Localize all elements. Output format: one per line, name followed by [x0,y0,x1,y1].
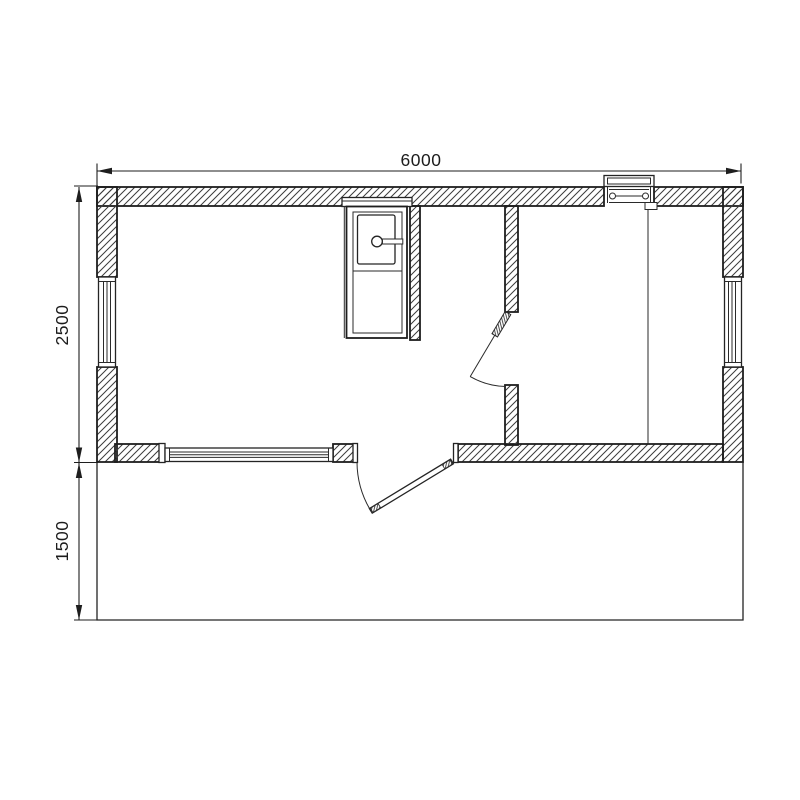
stove-flue-wall [410,206,420,340]
left-window [99,277,116,367]
bottom-wall-right [458,444,723,462]
left-wall-upper [97,187,117,277]
dimension-width-label: 6000 [401,150,442,170]
entrance-door-leaf [369,459,453,513]
vent-outer-box [604,176,654,187]
dimension-main-depth: 2500 [52,186,98,463]
interior-door-swing-arc [470,377,506,387]
dimension-main-depth-label: 2500 [52,305,72,346]
stove-body [347,207,408,339]
vent-step [645,203,657,210]
dimension-porch-depth-label: 1500 [52,521,72,562]
left-wall-lower [97,367,117,462]
right-window [725,277,742,367]
entrance-door-swing-arc [357,462,371,511]
vent-hinge-right [643,193,649,199]
stove-top-bar [342,198,412,207]
interior-wall-lower [505,385,518,445]
interior-door-leaf [492,311,511,337]
dimension-porch-depth: 1500 [52,463,98,621]
porch-outline [97,462,743,620]
stove-handle-knob [372,236,383,247]
entrance-door-jamb [454,444,459,463]
floor-plan-page: 6000 2500 1500 [0,0,800,800]
right-wall-lower [723,367,743,462]
bottom-wall-left [115,444,161,462]
top-vent-window [604,176,657,210]
stove-handle-bar [382,239,403,244]
entrance-door [357,444,458,514]
interior-wall [505,206,518,445]
stove [342,198,420,341]
vent-hinge-left [610,193,616,199]
right-wall-upper [723,187,743,277]
right-window-frame [725,277,742,367]
floor-plan-canvas: 6000 2500 1500 [0,0,800,800]
bottom-window-jamb-left [159,444,165,463]
bottom-window-jamb-right [353,444,358,463]
bottom-wall-pier [333,444,354,462]
bottom-window [159,444,358,463]
interior-wall-upper [505,206,518,312]
interior-door [470,311,511,386]
